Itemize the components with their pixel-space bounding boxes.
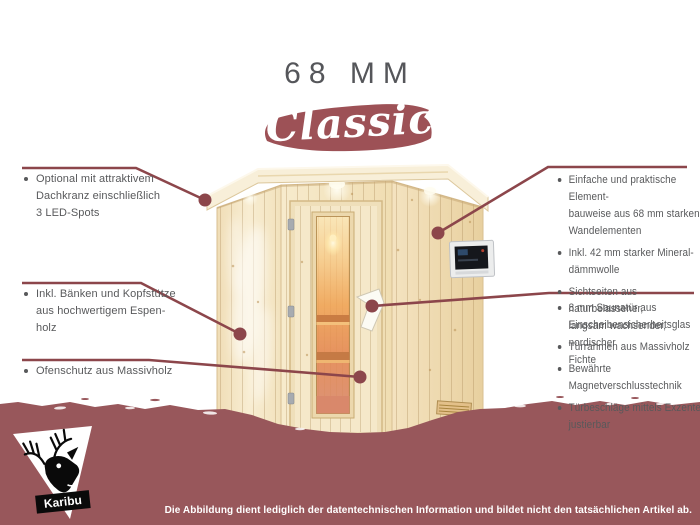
callout-item: Optional mit attraktivem Dachkranz einsc… <box>22 171 212 222</box>
callout-dot-doorhandle <box>366 300 379 313</box>
callout-right-door: 8 mm Saunatür aus Einscheibensicherheits… <box>556 300 700 439</box>
callout-item: Bewährte Magnetverschlusstechnik <box>556 361 700 395</box>
callout-left-ovenguard: Ofenschutz aus Massivholz <box>22 363 222 385</box>
callout-item: Einfache und praktische Element- bauweis… <box>556 172 700 240</box>
callout-item: Inkl. Bänken und Kopfstütze aus hochwert… <box>22 286 212 337</box>
callout-dot-wall <box>432 227 445 240</box>
callout-item: Türrahmen aus Massivholz <box>556 339 700 356</box>
brand-logo: Karibu <box>4 421 100 525</box>
callout-item: Türbeschläge mittels Exzenter justierbar <box>556 400 700 434</box>
callout-left-roof: Optional mit attraktivem Dachkranz einsc… <box>22 171 212 227</box>
callout-dot-bench <box>234 328 247 341</box>
callout-item: Inkl. 42 mm starker Mineral- dämmwolle <box>556 245 700 279</box>
disclaimer-text: Die Abbildung dient lediglich der datent… <box>132 505 692 516</box>
callout-left-bench: Inkl. Bänken und Kopfstütze aus hochwert… <box>22 286 212 342</box>
callout-item: Ofenschutz aus Massivholz <box>22 363 222 380</box>
brand-label-plate: Karibu <box>35 490 91 514</box>
callout-dot-ovenguard <box>354 371 367 384</box>
infographic-page: 68 MM Classic <box>0 0 700 525</box>
callout-item: 8 mm Saunatür aus Einscheibensicherheits… <box>556 300 700 334</box>
